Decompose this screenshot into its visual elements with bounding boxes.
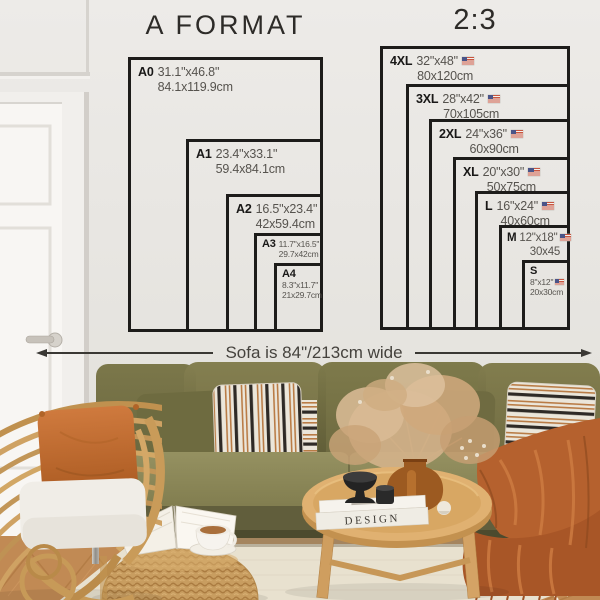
size-label: 3XL: [416, 92, 438, 122]
size-label: A2: [236, 202, 252, 232]
white-cushion: [19, 478, 147, 550]
arrow-line: [415, 352, 581, 354]
size-inches: 28"x42": [442, 92, 484, 106]
size-label: M: [507, 232, 516, 259]
size-cm: 29.7x42cm: [279, 249, 319, 259]
size-inches: 16.5"x23.4": [256, 202, 318, 217]
us-flag-icon: [555, 279, 564, 285]
size-cm: 80x120cm: [417, 69, 473, 84]
size-cm: 20x30cm: [530, 287, 563, 297]
size-label: 4XL: [390, 54, 412, 84]
arrow-left-icon: [36, 349, 47, 357]
size-cm: 84.1x119.9cm: [158, 80, 233, 95]
size-box-a4: A4 8.3"x11.7" 21x29.7cm: [274, 263, 323, 332]
size-inches-line: 32"x48": [416, 54, 474, 69]
size-label: 2XL: [439, 127, 461, 157]
size-inches-line: 24"x36": [465, 127, 523, 142]
size-cm: 42x59.4cm: [256, 217, 315, 232]
size-cm: 59.4x84.1cm: [216, 162, 285, 177]
black-cup: [376, 485, 394, 504]
size-label: L: [485, 199, 492, 229]
us-flag-icon: [511, 130, 523, 138]
size-box-s: S 8"x12" 20x30cm: [522, 260, 570, 330]
us-flag-icon: [560, 234, 571, 242]
size-inches-line: 20"x30": [483, 165, 541, 180]
size-inches: 24"x36": [465, 127, 507, 141]
size-label: A1: [196, 147, 212, 177]
us-flag-icon: [488, 95, 500, 103]
size-cm: 21x29.7cm: [282, 290, 322, 300]
size-inches: 23.4"x33.1": [216, 147, 278, 162]
ratio-2-3-title: 2:3: [380, 4, 570, 37]
size-label: A0: [138, 65, 154, 95]
arrow-line: [47, 352, 213, 354]
size-inches: 31.1"x46.8": [158, 65, 220, 80]
us-flag-icon: [462, 57, 474, 65]
a-format-title: A FORMAT: [128, 10, 323, 41]
us-flag-icon: [542, 202, 554, 210]
size-inches: 8"x12": [530, 277, 553, 287]
size-inches: 20"x30": [483, 165, 525, 179]
arrow-right-icon: [581, 349, 592, 357]
poster-size-guide-mockup: DESIGN: [0, 0, 600, 600]
size-inches-line: 12"x18": [519, 232, 570, 246]
size-inches-line: 28"x42": [442, 92, 500, 107]
size-inches: 12"x18": [519, 232, 557, 244]
size-inches-line: 8"x12": [530, 277, 564, 287]
size-inches: 8.3"x11.7": [282, 280, 318, 290]
size-label: A4: [282, 269, 319, 279]
size-inches: 11.7"x16.5": [279, 239, 320, 249]
sofa-width-note: Sofa is 84"/213cm wide: [36, 342, 592, 364]
size-inches: 32"x48": [416, 54, 458, 68]
us-flag-icon: [528, 168, 540, 176]
sofa-width-text: Sofa is 84"/213cm wide: [213, 343, 414, 363]
size-label: S: [530, 266, 566, 276]
size-inches-line: 16"x24": [496, 199, 554, 214]
size-label: A3: [262, 239, 276, 259]
size-inches: 16"x24": [496, 199, 538, 213]
size-cm: 60x90cm: [469, 142, 518, 157]
size-cm: 30x45: [530, 246, 560, 260]
